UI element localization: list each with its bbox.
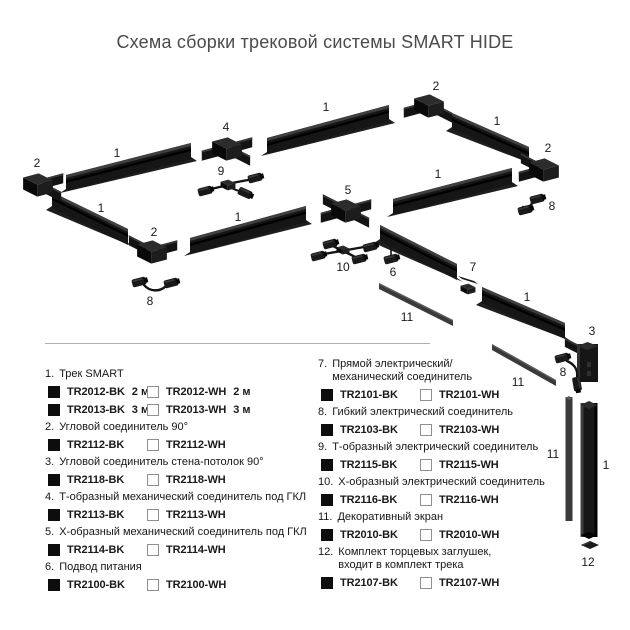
variant-black: TR2013-BK3 м [48, 404, 147, 416]
item-number: 11. [318, 511, 332, 524]
item-title-text: Прямой электрический/механический соедин… [332, 358, 472, 384]
item-number: 12. [318, 546, 333, 572]
item-title-text: Декоративный экран [337, 511, 443, 524]
legend-column-right: 7.Прямой электрический/механический соед… [318, 358, 593, 594]
white-swatch [147, 544, 159, 556]
item-number: 7. [318, 358, 327, 384]
cable-connector-head [197, 185, 215, 197]
variant-row: TR2101-BKTR2101-WH [321, 388, 593, 401]
item-number: 3. [45, 456, 54, 469]
product-code-bk: TR2101-BK [340, 389, 398, 401]
cable-connector-head [383, 253, 401, 265]
variant-white: TR2107-WH [420, 577, 499, 589]
straight-connector-7 [458, 276, 478, 284]
cable-connector-head [529, 193, 547, 205]
legend-item: 5.Х-образный механический соединитель по… [45, 526, 320, 556]
cable-connector-head [247, 172, 265, 184]
part-label-1: 1 [435, 167, 442, 181]
white-swatch [147, 474, 159, 486]
product-code-wh: TR2114-WH [166, 544, 226, 556]
item-title-text: Угловой соединитель стена-потолок 90° [59, 456, 263, 469]
part-label-2: 2 [433, 79, 440, 93]
variant-black: TR2115-BK [321, 459, 420, 471]
legend-item: 3.Угловой соединитель стена-потолок 90°T… [45, 456, 320, 486]
legend-item: 9.Т-образный электрический соединительTR… [318, 441, 593, 471]
vertical-track-shadow [595, 403, 598, 537]
black-swatch [321, 424, 333, 436]
variant-row: TR2113-BKTR2113-WH [48, 508, 320, 521]
item-number: 6. [45, 561, 54, 574]
item-title: 12.Комплект торцевых заглушек,входит в к… [318, 546, 593, 572]
black-swatch [48, 579, 60, 591]
variant-row: TR2013-BK3 мTR2013-WH3 м [48, 403, 320, 416]
part-label-1: 1 [603, 458, 610, 472]
product-code-bk: TR2112-BK [67, 439, 124, 451]
item-title: 1.Трек SMART [45, 368, 320, 381]
variant-row: TR2107-BKTR2107-WH [321, 576, 593, 589]
product-code-bk: TR2013-BK [67, 404, 125, 416]
item-title: 4.Т-образный механический соединитель по… [45, 491, 320, 504]
cable-connector-head [237, 186, 255, 200]
item-title-text: Комплект торцевых заглушек,входит в комп… [338, 546, 491, 572]
product-code-wh: TR2112-WH [166, 439, 226, 451]
item-number: 8. [318, 406, 327, 419]
part-label-1: 1 [98, 201, 105, 215]
variant-white: TR2115-WH [420, 459, 499, 471]
part-label-6: 6 [390, 265, 397, 279]
product-code-bk: TR2113-BK [67, 509, 124, 521]
part-label-8: 8 [147, 294, 154, 308]
item-number: 4. [45, 491, 54, 504]
white-swatch [147, 509, 159, 521]
black-swatch [321, 389, 333, 401]
variant-black: TR2101-BK [321, 389, 420, 401]
part-label-2: 2 [545, 141, 552, 155]
legend-item: 7.Прямой электрический/механический соед… [318, 358, 593, 401]
part-label-1: 1 [235, 210, 242, 224]
variant-black: TR2107-BK [321, 577, 420, 589]
cable-connector-head [362, 241, 380, 253]
product-code-wh: TR2012-WH [166, 386, 226, 398]
variant-white: TR2010-WH [420, 529, 499, 541]
diagram-shape [144, 285, 166, 290]
variant-black: TR2113-BK [48, 509, 147, 521]
variant-row: TR2116-BKTR2116-WH [321, 493, 593, 506]
variant-row: TR2010-BKTR2010-WH [321, 528, 593, 541]
item-number: 1. [45, 368, 54, 381]
white-swatch [420, 389, 432, 401]
variant-black: TR2100-BK [48, 579, 147, 591]
item-title-text: Угловой соединитель 90° [59, 421, 188, 434]
legend-item: 2.Угловой соединитель 90°TR2112-BKTR2112… [45, 421, 320, 451]
item-title: 5.Х-образный механический соединитель по… [45, 526, 320, 539]
part-label-5: 5 [345, 183, 352, 197]
variant-white: TR2100-WH [147, 579, 226, 591]
cable-connector-head [351, 253, 369, 265]
cable-connector-head [517, 204, 535, 216]
item-title-text: Х-образный механический соединитель под … [59, 526, 307, 539]
black-swatch [48, 386, 60, 398]
black-swatch [48, 544, 60, 556]
variant-black: TR2114-BK [48, 544, 147, 556]
legend-item: 6.Подвод питанияTR2100-BKTR2100-WH [45, 561, 320, 591]
cable-connector-head [163, 277, 181, 289]
variant-white: TR2013-WH3 м [147, 404, 251, 416]
white-swatch [420, 494, 432, 506]
white-swatch [147, 386, 159, 398]
diagram-shape [232, 180, 248, 183]
part-label-3: 3 [589, 324, 596, 338]
white-swatch [420, 459, 432, 471]
variant-black: TR2112-BK [48, 439, 147, 451]
item-title: 11.Декоративный экран [318, 511, 593, 524]
product-code-bk: TR2116-BK [340, 494, 397, 506]
product-code-wh: TR2100-WH [166, 579, 226, 591]
product-code-wh: TR2013-WH [166, 404, 226, 416]
variant-row: TR2012-BK2 мTR2012-WH2 м [48, 385, 320, 398]
part-label-1: 1 [494, 114, 501, 128]
item-title: 8.Гибкий электрический соединитель [318, 406, 593, 419]
part-label-1: 1 [524, 290, 531, 304]
variant-white: TR2103-WH [420, 424, 499, 436]
item-title: 2.Угловой соединитель 90° [45, 421, 320, 434]
black-swatch [48, 439, 60, 451]
item-number: 9. [318, 441, 327, 454]
product-code-bk: TR2100-BK [67, 579, 125, 591]
variant-row: TR2115-BKTR2115-WH [321, 458, 593, 471]
variant-row: TR2100-BKTR2100-WH [48, 578, 320, 591]
product-code-wh: TR2010-WH [439, 529, 499, 541]
item-title: 10.Х-образный электрический соединитель [318, 476, 593, 489]
item-title-line2: механический соединитель [332, 371, 472, 384]
legend-item: 12.Комплект торцевых заглушек,входит в к… [318, 546, 593, 589]
legend-column-left: 1.Трек SMARTTR2012-BK2 мTR2012-WH2 мTR20… [45, 368, 320, 596]
black-swatch [321, 459, 333, 471]
item-title-text: Подвод питания [59, 561, 142, 574]
legend-item: 8.Гибкий электрический соединительTR2103… [318, 406, 593, 436]
white-swatch [420, 529, 432, 541]
item-title: 3.Угловой соединитель стена-потолок 90° [45, 456, 320, 469]
legend-divider [45, 343, 430, 344]
product-code-wh: TR2103-WH [439, 424, 499, 436]
product-code-wh: TR2101-WH [439, 389, 499, 401]
part-label-1: 1 [114, 146, 121, 160]
product-code-wh: TR2113-WH [166, 509, 226, 521]
product-code-wh: TR2107-WH [439, 577, 499, 589]
product-code-bk: TR2118-BK [67, 474, 124, 486]
black-swatch [48, 474, 60, 486]
variant-row: TR2103-BKTR2103-WH [321, 423, 593, 436]
item-title-text: Гибкий электрический соединитель [332, 406, 513, 419]
item-number: 10. [318, 476, 333, 489]
variant-black: TR2118-BK [48, 474, 147, 486]
item-title: 7.Прямой электрический/механический соед… [318, 358, 593, 384]
black-swatch [48, 509, 60, 521]
white-swatch [147, 579, 159, 591]
item-number: 2. [45, 421, 54, 434]
variant-white: TR2112-WH [147, 439, 226, 451]
product-code-bk: TR2114-BK [67, 544, 124, 556]
variant-white: TR2113-WH [147, 509, 226, 521]
product-code-bk: TR2115-BK [340, 459, 397, 471]
length-note: 3 м [233, 404, 250, 416]
part-label-11: 11 [401, 310, 414, 324]
item-title-text: Т-образный электрический соединитель [332, 441, 538, 454]
part-label-2: 2 [34, 156, 41, 170]
white-swatch [420, 577, 432, 589]
product-code-bk: TR2103-BK [340, 424, 398, 436]
variant-black: TR2116-BK [321, 494, 420, 506]
item-title-text: Трек SMART [59, 368, 124, 381]
item-title-text: Х-образный электрический соединитель [338, 476, 545, 489]
variant-black: TR2103-BK [321, 424, 420, 436]
variant-white: TR2114-WH [147, 544, 226, 556]
item-title-text: Т-образный механический соединитель под … [59, 491, 306, 504]
variant-black: TR2012-BK2 м [48, 386, 147, 398]
item-title: 6.Подвод питания [45, 561, 320, 574]
black-swatch [321, 494, 333, 506]
item-number: 5. [45, 526, 54, 539]
item-title: 9.Т-образный электрический соединитель [318, 441, 593, 454]
black-swatch [321, 529, 333, 541]
product-code-bk: TR2010-BK [340, 529, 398, 541]
variant-white: TR2116-WH [420, 494, 499, 506]
product-code-wh: TR2116-WH [439, 494, 499, 506]
length-note: 2 м [233, 386, 250, 398]
part-label-7: 7 [470, 260, 477, 274]
part-label-4: 4 [223, 120, 230, 134]
variant-white: TR2012-WH2 м [147, 386, 251, 398]
white-swatch [147, 404, 159, 416]
variant-row: TR2118-BKTR2118-WH [48, 473, 320, 486]
legend-item: 1.Трек SMARTTR2012-BK2 мTR2012-WH2 мTR20… [45, 368, 320, 416]
screen-top-edge [379, 283, 453, 322]
black-swatch [48, 404, 60, 416]
product-code-wh: TR2115-WH [439, 459, 499, 471]
item-title-line2: входит в комплект трека [338, 559, 491, 572]
variant-row: TR2114-BKTR2114-WH [48, 543, 320, 556]
product-code-wh: TR2118-WH [166, 474, 226, 486]
white-swatch [420, 424, 432, 436]
part-label-10: 10 [336, 260, 350, 274]
black-swatch [321, 577, 333, 589]
legend-item: 4.Т-образный механический соединитель по… [45, 491, 320, 521]
part-label-2: 2 [151, 225, 158, 239]
legend-item: 11.Декоративный экранTR2010-BKTR2010-WH [318, 511, 593, 541]
product-code-bk: TR2107-BK [340, 577, 398, 589]
variant-row: TR2112-BKTR2112-WH [48, 438, 320, 451]
variant-white: TR2101-WH [420, 389, 499, 401]
variant-black: TR2010-BK [321, 529, 420, 541]
part-label-1: 1 [323, 100, 330, 114]
cable-connector-head [310, 250, 328, 262]
product-code-bk: TR2012-BK [67, 386, 125, 398]
part-label-8: 8 [549, 199, 556, 213]
legend-item: 10.Х-образный электрический соединительT… [318, 476, 593, 506]
white-swatch [147, 439, 159, 451]
variant-white: TR2118-WH [147, 474, 226, 486]
part-label-9: 9 [218, 164, 225, 178]
